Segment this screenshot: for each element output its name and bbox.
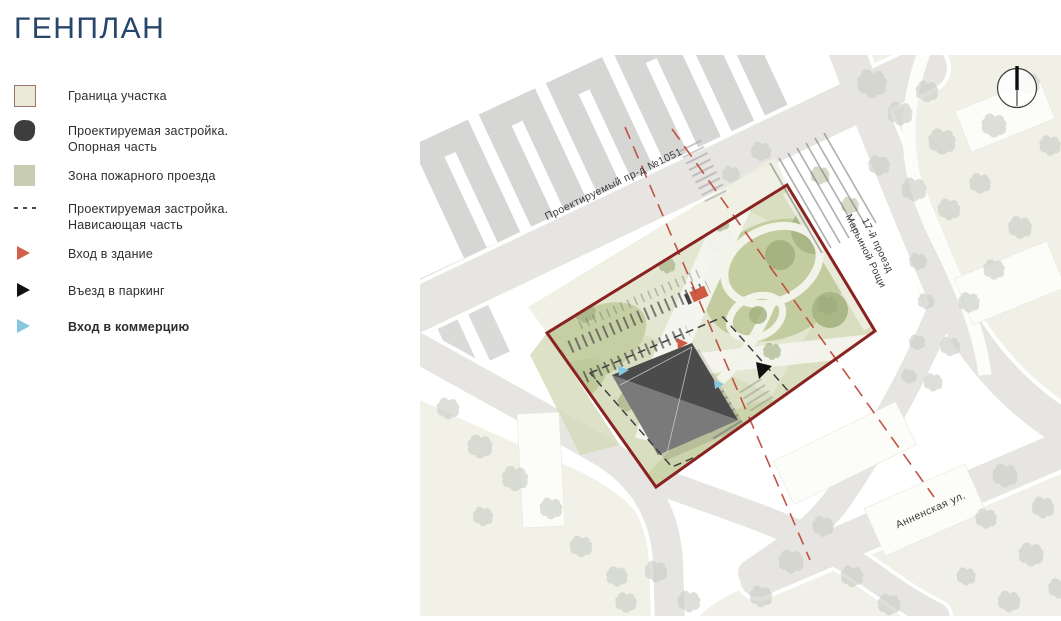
legend-label: Въезд в паркинг [68, 280, 165, 299]
legend-label: Вход в здание [68, 243, 153, 262]
legend-item-building-entrance: Вход в здание [14, 243, 153, 265]
page-title: ГЕНПЛАН [14, 12, 165, 46]
legend-label: Вход в коммерцию [68, 316, 189, 335]
legend-label: Зона пожарного проезда [68, 165, 216, 184]
legend-item-commercial-entrance: Вход в коммерцию [14, 316, 189, 338]
fire-lane-swatch-icon [14, 165, 35, 186]
site-plan-map: Проектируемый пр-д №1051 17-й проезд Мар… [420, 55, 1061, 616]
legend-label-line2: Нависающая часть [68, 218, 183, 232]
legend-item-building-overhang: Проектируемая застройка. Нависающая част… [14, 198, 228, 233]
building-base-swatch-icon [13, 119, 35, 141]
commercial-entrance-arrow-icon [17, 319, 30, 333]
legend-label: Граница участка [68, 85, 167, 104]
site-plan-svg: Проектируемый пр-д №1051 17-й проезд Мар… [420, 55, 1061, 616]
legend-item-site-boundary: Граница участка [14, 85, 167, 107]
building-entrance-arrow-icon [17, 246, 30, 260]
legend-label: Проектируемая застройка. [68, 124, 228, 138]
legend-item-building-base: Проектируемая застройка. Опорная часть [14, 120, 228, 155]
legend-label: Проектируемая застройка. [68, 202, 228, 216]
overhang-dash-swatch-icon [14, 207, 36, 209]
legend-label-line2: Опорная часть [68, 140, 157, 154]
site-boundary-swatch-icon [14, 85, 36, 107]
legend-item-fire-lane: Зона пожарного проезда [14, 165, 216, 187]
legend-item-parking-entrance: Въезд в паркинг [14, 280, 165, 302]
parking-entrance-arrow-icon [17, 283, 30, 297]
